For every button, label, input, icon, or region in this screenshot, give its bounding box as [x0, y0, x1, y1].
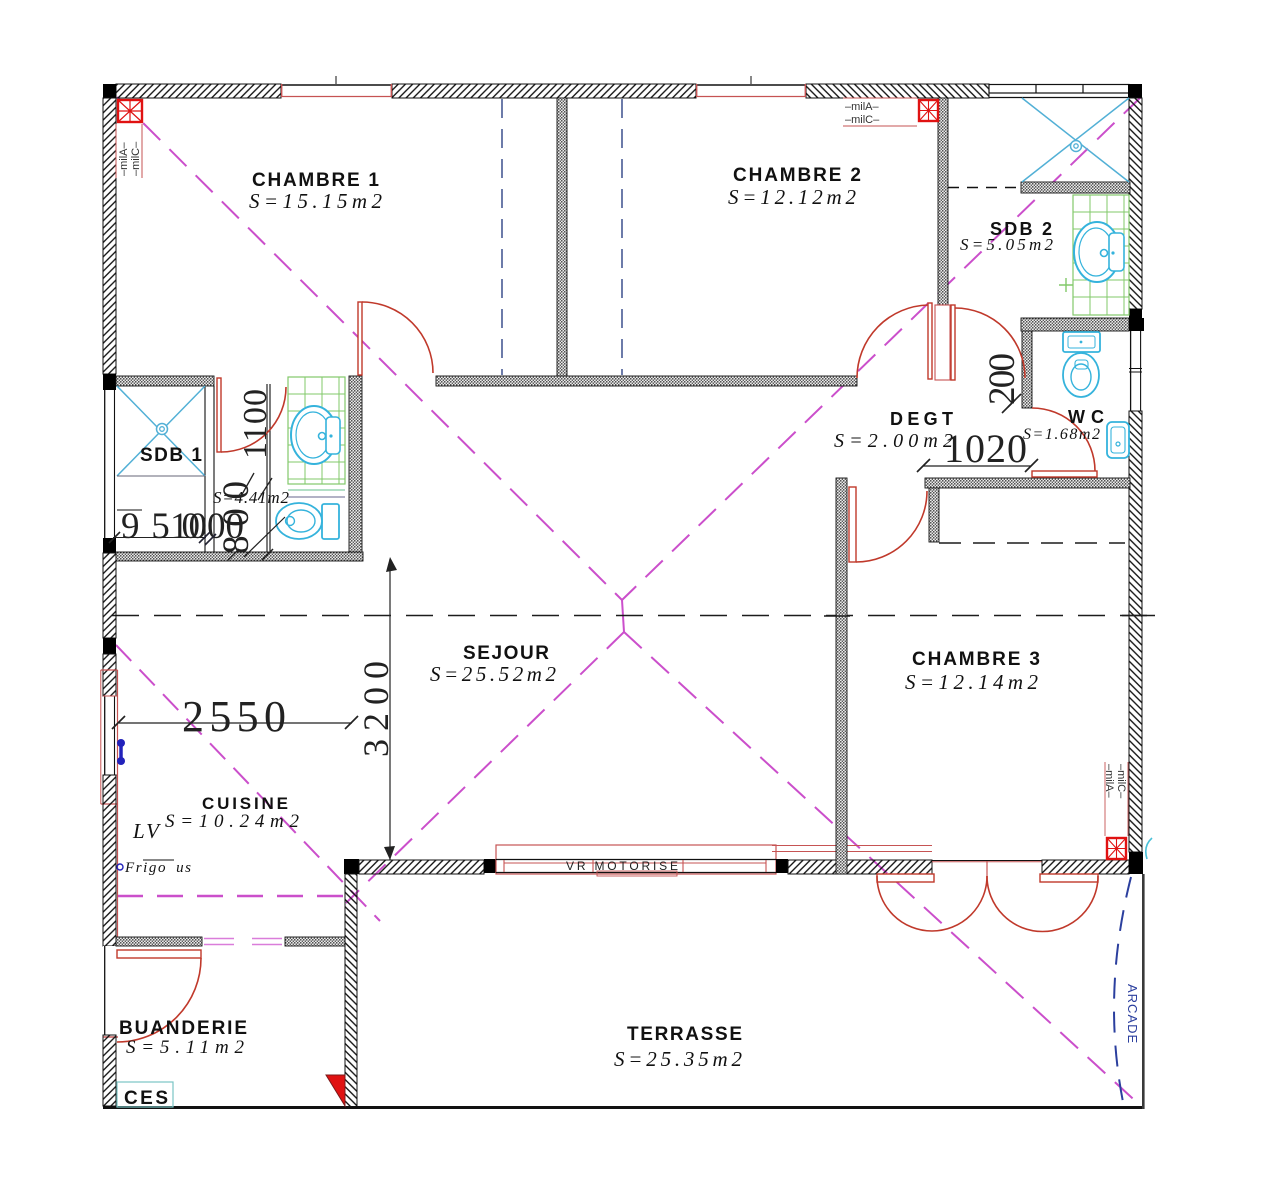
- svg-text:S=1.68m2: S=1.68m2: [1023, 426, 1100, 443]
- svg-text:–milA–: –milA–: [118, 141, 130, 176]
- svg-text:S=5.05m2: S=5.05m2: [960, 235, 1054, 254]
- svg-text:S=25.52m2: S=25.52m2: [430, 662, 557, 686]
- svg-text:1100: 1100: [237, 389, 274, 459]
- svg-text:LV: LV: [132, 819, 161, 843]
- svg-text:SDB 1: SDB 1: [140, 445, 202, 466]
- svg-text:–milC–: –milC–: [1115, 764, 1127, 799]
- svg-text:BUANDERIE: BUANDERIE: [119, 1018, 247, 1039]
- svg-text:S=25.35m2: S=25.35m2: [614, 1047, 743, 1071]
- svg-text:S=15.15m2: S=15.15m2: [249, 189, 383, 213]
- svg-text:S=12.14m2: S=12.14m2: [905, 670, 1039, 694]
- svg-text:–milC–: –milC–: [845, 114, 880, 126]
- svg-text:S=12.12m2: S=12.12m2: [728, 185, 857, 209]
- svg-text:S=5.11m2: S=5.11m2: [126, 1037, 245, 1058]
- svg-text:CES: CES: [124, 1088, 168, 1109]
- svg-text:S=2.00m2: S=2.00m2: [834, 430, 953, 452]
- svg-text:1020: 1020: [944, 426, 1027, 471]
- svg-text:–milA–: –milA–: [845, 101, 880, 113]
- svg-text:800: 800: [216, 481, 257, 554]
- svg-text:S=10.24m2: S=10.24m2: [165, 811, 300, 832]
- svg-text:–milC–: –milC–: [130, 141, 142, 176]
- svg-text:VR MOTORISE: VR MOTORISE: [566, 859, 678, 873]
- svg-text:TERRASSE: TERRASSE: [627, 1024, 742, 1045]
- svg-text:ARCADE: ARCADE: [1125, 984, 1140, 1044]
- svg-text:Frigo us: Frigo us: [124, 860, 191, 876]
